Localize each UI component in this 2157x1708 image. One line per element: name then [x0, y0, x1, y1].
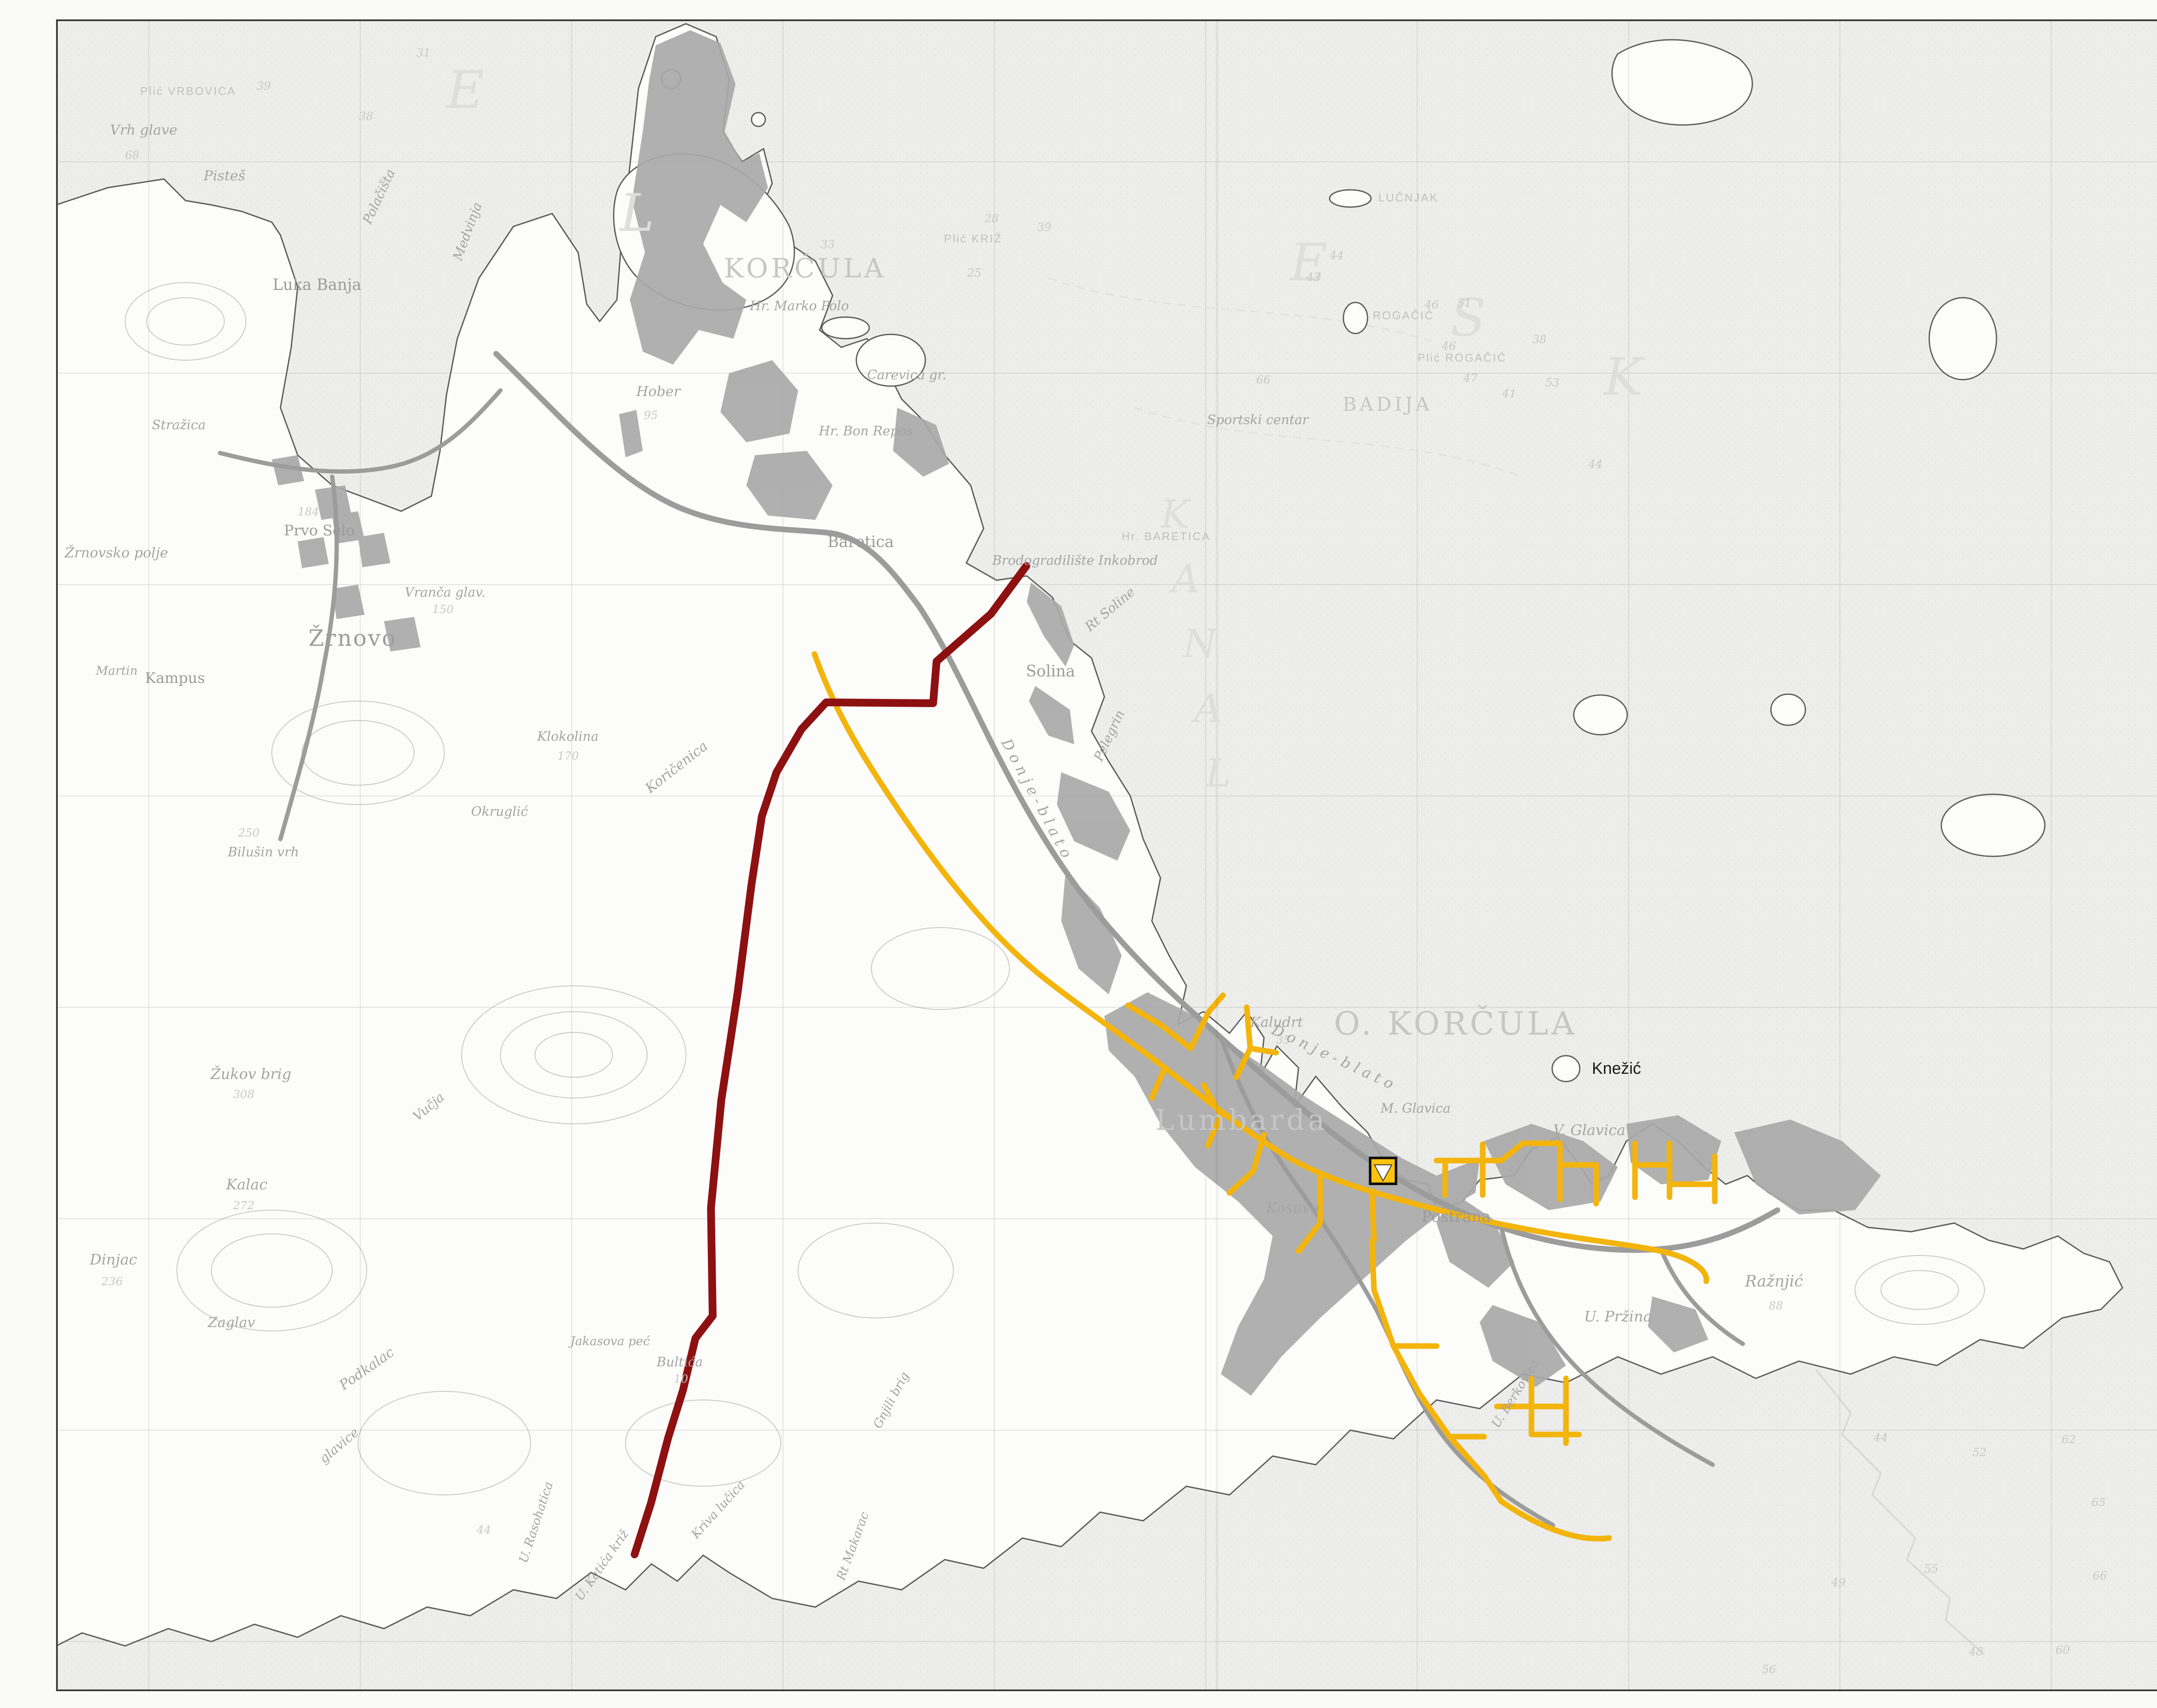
fold-seam — [1216, 19, 1218, 1691]
map-area — [56, 19, 2157, 1691]
post-office-icon — [1370, 1158, 1396, 1184]
islet-vrnik — [856, 334, 925, 386]
islet-knezic — [1552, 1056, 1580, 1082]
islet — [1941, 794, 2045, 856]
plan-sheet: { "colors":{"telecom_yellow":"#f3b40c","… — [0, 0, 2157, 1708]
islet — [1574, 695, 1627, 735]
islet-lucnjak — [1330, 190, 1371, 207]
islet — [1771, 694, 1805, 725]
islet — [1929, 298, 1997, 380]
islet — [751, 113, 765, 126]
islet-rogacic — [1343, 302, 1368, 333]
map-svg — [56, 19, 2157, 1691]
islet-planjak — [822, 317, 869, 339]
